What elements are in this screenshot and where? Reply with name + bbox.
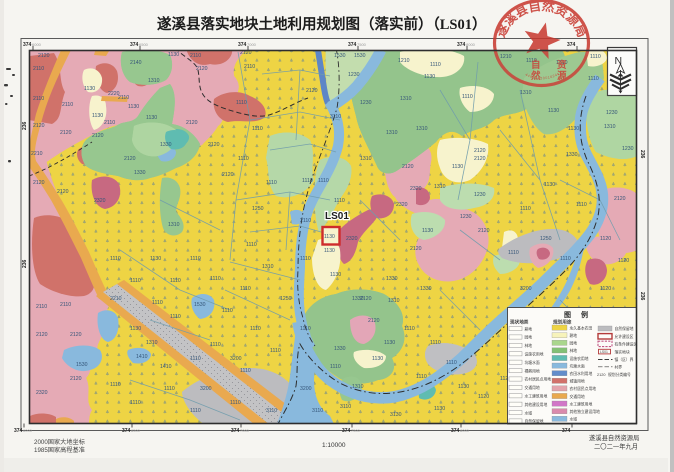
svg-text:6000: 6000 bbox=[23, 428, 33, 433]
svg-text:374: 374 bbox=[122, 428, 131, 434]
svg-text:236: 236 bbox=[639, 150, 645, 159]
svg-text:2000国家大地坐标: 2000国家大地坐标 bbox=[34, 438, 85, 446]
svg-text:遂溪县自然资源局: 遂溪县自然资源局 bbox=[589, 433, 639, 442]
svg-text:374: 374 bbox=[451, 428, 460, 434]
svg-text:8000: 8000 bbox=[466, 42, 476, 47]
svg-text:6000: 6000 bbox=[32, 42, 42, 47]
svg-text:236: 236 bbox=[22, 259, 28, 268]
svg-text:1:10000: 1:10000 bbox=[322, 442, 346, 449]
svg-text:7500: 7500 bbox=[351, 428, 361, 433]
svg-text:7500: 7500 bbox=[357, 42, 367, 47]
svg-text:374: 374 bbox=[130, 42, 139, 48]
svg-text:374: 374 bbox=[23, 42, 32, 48]
svg-text:374: 374 bbox=[348, 42, 357, 48]
svg-text:7000: 7000 bbox=[240, 428, 250, 433]
svg-text:374: 374 bbox=[457, 42, 466, 48]
svg-text:6500: 6500 bbox=[131, 428, 141, 433]
svg-text:6500: 6500 bbox=[139, 42, 149, 47]
svg-text:遂溪县落实地块土地利用规划图（落实前）（LS01）: 遂溪县落实地块土地利用规划图（落实前）（LS01） bbox=[157, 15, 486, 33]
svg-text:374: 374 bbox=[342, 428, 351, 434]
svg-text:374: 374 bbox=[238, 42, 247, 48]
svg-text:374: 374 bbox=[231, 428, 240, 434]
svg-text:8000: 8000 bbox=[460, 428, 470, 433]
svg-text:374: 374 bbox=[562, 428, 571, 434]
svg-text:374: 374 bbox=[14, 428, 23, 434]
svg-text:374: 374 bbox=[567, 42, 576, 48]
svg-text:1985国家高程基准: 1985国家高程基准 bbox=[34, 446, 85, 454]
svg-text:236: 236 bbox=[22, 121, 28, 130]
svg-text:二〇二一年九月: 二〇二一年九月 bbox=[594, 442, 638, 451]
svg-text:236: 236 bbox=[639, 292, 645, 301]
svg-text:7000: 7000 bbox=[247, 42, 257, 47]
